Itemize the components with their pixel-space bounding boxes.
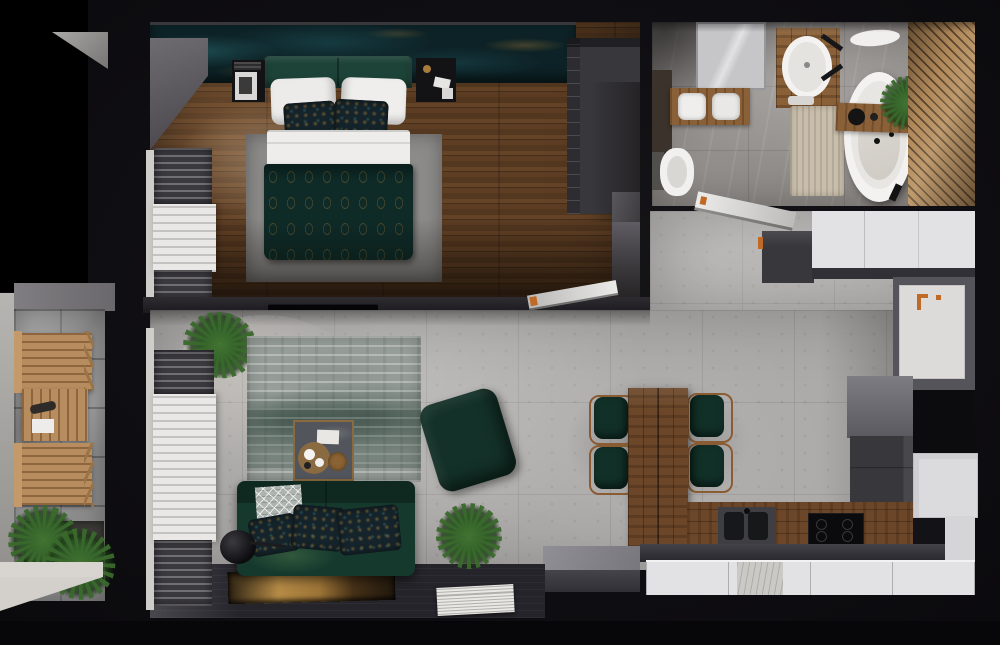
towel-roll-1 — [678, 93, 706, 120]
wardrobe-shelves — [567, 38, 580, 214]
living-blackout-curtain-bottom — [154, 540, 212, 606]
table-center-seam — [657, 388, 659, 548]
wardrobe-top-shadow — [567, 38, 640, 47]
bedroom-blackout-curtain-top — [154, 148, 212, 206]
kitchen-tall-cabinets — [850, 436, 913, 506]
towel-shelf — [670, 88, 750, 125]
right-dark-gap-upper — [913, 390, 975, 455]
dining-chair-seat-4 — [690, 445, 724, 487]
towel-roll-2 — [712, 93, 740, 120]
floorplan-render — [0, 0, 1000, 645]
hall-cabinet-handle — [758, 237, 763, 249]
right-white-column — [945, 516, 975, 564]
nightstand-lamp — [423, 65, 431, 73]
table-card — [32, 419, 54, 433]
chair-bottom-rail-left — [14, 443, 22, 507]
hall-dark-cabinet — [762, 231, 814, 283]
exterior-black-bottom — [0, 621, 1000, 645]
balcony-table — [22, 389, 88, 441]
kitchen-faucet — [744, 508, 750, 514]
sink-basin-left — [724, 512, 744, 540]
hall-white-wardrobe — [812, 211, 975, 274]
nightstand-left-art — [239, 77, 252, 94]
sofa-cushion-3 — [336, 504, 402, 556]
kitchen-white-cabinets — [646, 560, 975, 595]
bathtub-drain — [874, 138, 880, 144]
dining-chair-seat-2 — [594, 447, 628, 489]
shower-tray — [696, 22, 766, 90]
sink-basin-right — [748, 512, 768, 540]
open-door-handle — [700, 196, 708, 205]
right-white-window — [913, 453, 978, 518]
burner-1 — [816, 519, 827, 530]
bedroom-sheer-curtain — [153, 204, 216, 272]
bathtub-overflow — [889, 132, 894, 137]
balcony-chair-top — [20, 333, 92, 391]
burner-2 — [842, 519, 853, 530]
white-print — [436, 584, 514, 616]
living-blackout-curtain-top — [154, 350, 214, 396]
table-decor-leaf — [29, 400, 56, 414]
bathtub-faucet — [889, 183, 903, 201]
balcony-chair-bottom — [20, 443, 92, 505]
bedroom-right-shade — [590, 82, 640, 222]
entry-door-peephole — [936, 295, 941, 300]
nightstand-right — [416, 58, 456, 102]
burner-4 — [842, 531, 853, 542]
entry-door-handle-top — [917, 294, 928, 298]
living-sheer-curtain — [153, 394, 216, 542]
entry-door — [899, 285, 965, 379]
balcony-top-wall-face — [14, 283, 115, 311]
toilet-bowl — [660, 148, 694, 196]
nightstand-left — [232, 60, 265, 102]
tray-candle-1 — [304, 449, 315, 460]
chair-top-legs — [84, 331, 94, 393]
headboard-seam — [337, 58, 339, 86]
wood-slat-wall — [908, 22, 975, 206]
coffee-table — [293, 420, 354, 481]
chair-top-rail-left — [14, 331, 22, 393]
toilet-seat — [667, 156, 687, 188]
balcony — [0, 283, 115, 615]
coffee-table-notepad — [317, 430, 339, 445]
dining-chair-seat-1 — [594, 397, 628, 439]
dishwasher-marble-panel — [737, 562, 783, 595]
bedroom-door-handle — [529, 296, 537, 306]
dining-chair-seat-3 — [690, 395, 724, 437]
chair-bottom-legs — [84, 443, 94, 507]
tray-cup — [870, 113, 878, 121]
tray-black-disc — [848, 108, 866, 126]
soap-tray — [788, 96, 814, 105]
burner-3 — [816, 531, 827, 542]
dining-table-island — [628, 388, 688, 548]
tray-candle-2 — [315, 458, 324, 467]
bedroom-blackout-curtain-bottom — [154, 270, 212, 300]
floor-lamp-shade — [220, 530, 256, 564]
island-side-front — [543, 570, 640, 592]
bathroom-top-shade — [652, 22, 975, 32]
bedroom-floor — [150, 22, 640, 300]
nightstand-right-book — [442, 88, 453, 99]
kitchen-right-wall — [847, 376, 913, 438]
vanity-sink — [782, 36, 832, 98]
sink-drain — [804, 62, 810, 68]
nightstand-left-magazines — [234, 62, 261, 70]
kitchen-sink-unit — [718, 507, 776, 545]
coffee-table-plate — [328, 452, 347, 471]
coffee-table-tray — [298, 442, 330, 474]
bed-sheet — [267, 130, 410, 168]
bathroom-floor — [652, 22, 975, 206]
cooktop — [808, 513, 864, 545]
balcony-parapet-strip — [0, 562, 103, 577]
tray-dark-bowl — [304, 462, 311, 469]
